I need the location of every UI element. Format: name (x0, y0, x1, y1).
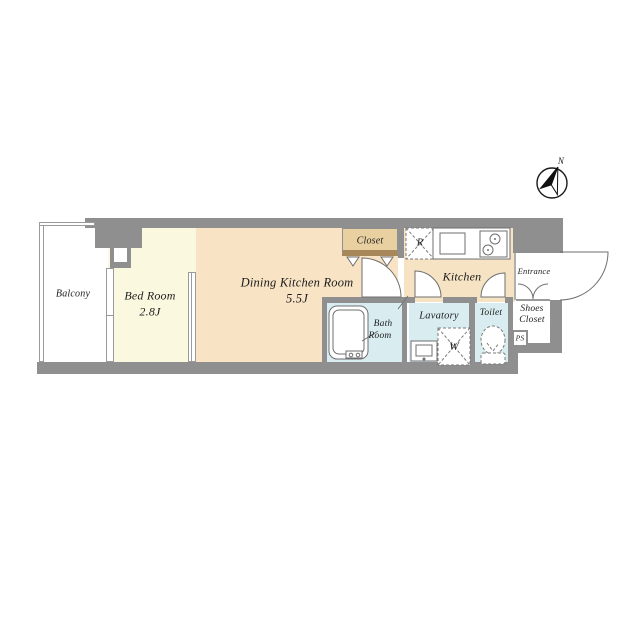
entrance-label: Entrance (518, 266, 551, 276)
shoes-closet-label-line1: Shoes (520, 304, 543, 314)
compass-ring (537, 168, 567, 198)
wall-lavatory-toilet (469, 303, 475, 362)
balcony-window (106, 268, 114, 362)
compass-icon (537, 164, 567, 198)
closet-label: Closet (357, 236, 384, 247)
needle-dark-half (540, 164, 557, 192)
bedroom-sliding-door (188, 272, 196, 362)
wall-corridor-1 (404, 297, 415, 303)
wall-bathroom-right (402, 297, 407, 362)
wall-above-entrance (513, 228, 563, 253)
bathroom-label-line2: Room (369, 331, 392, 341)
dining-kitchen-size-label: 5.5J (286, 292, 308, 307)
pipe-space-label: PS (516, 334, 525, 343)
wall-top (85, 218, 563, 228)
needle-light-half (549, 167, 566, 195)
pillar-upper (95, 228, 142, 248)
wall-bathroom-top (322, 297, 407, 303)
entrance-door-swing-icon (560, 252, 608, 300)
balcony-label: Balcony (56, 289, 90, 300)
entrance-shoes-divider (516, 299, 550, 301)
refrigerator-label: R (417, 238, 424, 249)
bedroom-size-label: 2.8J (139, 305, 160, 320)
floor-plan: Balcony Bed Room 2.8J Dining Kitchen Roo… (0, 0, 640, 640)
shoe-cabinet-door-icon (518, 284, 533, 299)
bathroom-label-line1: Bath (374, 319, 393, 329)
shoes-closet-label-line2: Closet (519, 315, 544, 325)
wall-bottom (37, 362, 518, 374)
entrance-step-line (514, 253, 516, 300)
shoe-cabinet-door-icon (533, 284, 548, 299)
bedroom-label: Bed Room (124, 289, 175, 304)
balcony-rail-top (39, 222, 95, 226)
north-arrow-icon (540, 164, 566, 195)
dining-kitchen-label: Dining Kitchen Room (241, 276, 354, 291)
pillar-notch (114, 248, 127, 262)
balcony-rail-left (39, 222, 44, 362)
kitchen-label: Kitchen (443, 270, 482, 285)
lavatory-label: Lavatory (419, 311, 459, 322)
washing-machine-label: W (449, 341, 459, 353)
wall-dk-kitchen (398, 218, 404, 258)
wall-bathroom-left (322, 303, 327, 362)
toilet-label: Toilet (480, 308, 503, 318)
compass-north-label: N (558, 156, 564, 166)
